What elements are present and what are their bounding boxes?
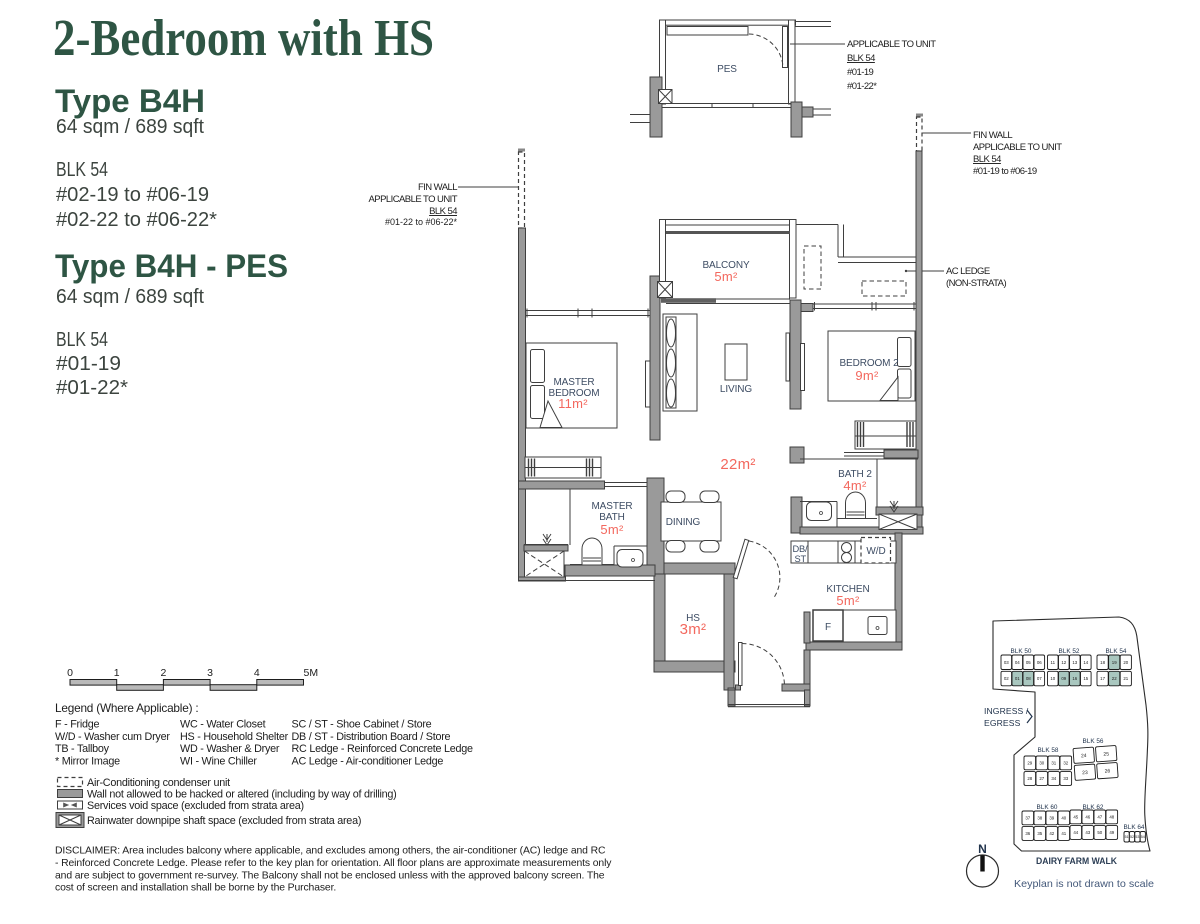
svg-text:03: 03 <box>1004 660 1009 665</box>
svg-text:4m²: 4m² <box>843 478 867 493</box>
svg-text:#02-22 to #06-22*: #02-22 to #06-22* <box>56 209 217 231</box>
svg-text:22m²: 22m² <box>720 456 755 473</box>
svg-text:20: 20 <box>1123 660 1128 665</box>
svg-text:BLK 64: BLK 64 <box>1124 824 1145 831</box>
svg-text:W/D: W/D <box>866 546 885 557</box>
svg-text:cost of screen and installatio: cost of screen and installation shall be… <box>55 883 336 894</box>
svg-text:33: 33 <box>1063 776 1068 781</box>
svg-text:BLK 54: BLK 54 <box>1106 648 1127 655</box>
svg-text:PES: PES <box>717 64 737 75</box>
svg-text:47: 47 <box>1097 815 1102 820</box>
svg-text:HS - Household Shelter: HS - Household Shelter <box>180 731 289 743</box>
svg-text:3: 3 <box>207 667 213 679</box>
svg-text:53: 53 <box>1135 835 1139 839</box>
svg-text:12: 12 <box>1061 660 1066 665</box>
svg-text:25: 25 <box>1103 751 1109 757</box>
svg-text:AC LEDGE: AC LEDGE <box>946 266 990 277</box>
svg-text:44: 44 <box>1073 830 1078 835</box>
svg-text:LIVING: LIVING <box>720 384 753 395</box>
svg-text:#01-22*: #01-22* <box>847 81 877 92</box>
svg-text:BLK 54: BLK 54 <box>56 159 108 181</box>
svg-text:08: 08 <box>1026 676 1031 681</box>
svg-text:APPLICABLE TO UNIT: APPLICABLE TO UNIT <box>369 194 458 205</box>
svg-text:02: 02 <box>1004 676 1009 681</box>
svg-text:05: 05 <box>1026 660 1031 665</box>
svg-text:W/D - Washer cum Dryer: W/D - Washer cum Dryer <box>55 731 170 743</box>
svg-text:#01-19 to #06-19: #01-19 to #06-19 <box>973 166 1037 177</box>
svg-text:64 sqm / 689 sqft: 64 sqm / 689 sqft <box>56 286 204 308</box>
svg-text:SC / ST - Shoe Cabinet / Store: SC / ST - Shoe Cabinet / Store <box>292 719 432 731</box>
svg-text:5m²: 5m² <box>600 522 624 537</box>
svg-text:TB - Tallboy: TB - Tallboy <box>55 743 110 755</box>
svg-text:39: 39 <box>1049 816 1054 821</box>
svg-text:FIN WALL: FIN WALL <box>973 130 1012 141</box>
svg-text:37: 37 <box>1025 816 1030 821</box>
svg-text:04: 04 <box>1015 660 1020 665</box>
svg-text:EGRESS: EGRESS <box>984 718 1021 728</box>
svg-text:21: 21 <box>1123 676 1128 681</box>
svg-text:APPLICABLE TO UNIT: APPLICABLE TO UNIT <box>847 39 936 50</box>
svg-text:Type B4H - PES: Type B4H - PES <box>55 248 288 284</box>
svg-text:DAIRY FARM WALK: DAIRY FARM WALK <box>1036 856 1117 867</box>
svg-text:32: 32 <box>1063 761 1068 766</box>
svg-text:09: 09 <box>1061 676 1066 681</box>
svg-text:and are subject to government: and are subject to government re-survey.… <box>55 870 605 881</box>
svg-text:1: 1 <box>114 667 120 679</box>
svg-text:9m²: 9m² <box>855 368 879 383</box>
svg-text:28: 28 <box>1027 776 1032 781</box>
svg-text:Air-Conditioning condenser uni: Air-Conditioning condenser unit <box>87 777 230 789</box>
svg-text:41: 41 <box>1061 831 1066 836</box>
svg-text:2-Bedroom with HS: 2-Bedroom with HS <box>53 10 434 67</box>
svg-text:48: 48 <box>1109 815 1114 820</box>
svg-text:52: 52 <box>1130 835 1134 839</box>
svg-text:DB/: DB/ <box>793 544 809 554</box>
svg-text:#01-19: #01-19 <box>847 67 874 78</box>
svg-text:ST: ST <box>795 554 807 564</box>
svg-text:10: 10 <box>1050 676 1055 681</box>
svg-text:Legend (Where Applicable) :: Legend (Where Applicable) : <box>55 701 198 715</box>
svg-text:Type B4H: Type B4H <box>55 83 205 119</box>
svg-text:2: 2 <box>160 667 166 679</box>
svg-text:51: 51 <box>1125 835 1129 839</box>
svg-text:5m²: 5m² <box>836 593 860 608</box>
svg-text:29: 29 <box>1027 761 1032 766</box>
svg-text:* Mirror Image: * Mirror Image <box>55 755 120 767</box>
svg-text:27: 27 <box>1039 776 1044 781</box>
svg-text:BLK 60: BLK 60 <box>1037 804 1058 811</box>
svg-text:13: 13 <box>1072 660 1077 665</box>
svg-text:BLK 56: BLK 56 <box>1083 738 1104 745</box>
svg-text:BLK 54: BLK 54 <box>973 154 1001 165</box>
svg-text:DISCLAIMER: Area includes balc: DISCLAIMER: Area includes balcony where … <box>55 846 606 857</box>
svg-text:BLK 54: BLK 54 <box>847 53 875 64</box>
svg-text:FIN WALL: FIN WALL <box>418 182 457 193</box>
svg-text:5M: 5M <box>304 667 319 679</box>
svg-text:APPLICABLE TO UNIT: APPLICABLE TO UNIT <box>973 142 1062 153</box>
svg-text:11: 11 <box>1051 660 1056 665</box>
svg-text:35: 35 <box>1037 831 1042 836</box>
svg-text:23: 23 <box>1082 770 1088 776</box>
svg-text:38: 38 <box>1037 816 1042 821</box>
svg-text:07: 07 <box>1037 676 1042 681</box>
svg-text:BLK 52: BLK 52 <box>1059 648 1080 655</box>
svg-text:17: 17 <box>1100 676 1105 681</box>
svg-text:RC Ledge - Reinforced Concrete: RC Ledge - Reinforced Concrete Ledge <box>292 743 474 755</box>
svg-text:(NON-STRATA): (NON-STRATA) <box>946 278 1006 289</box>
svg-text:BLK 50: BLK 50 <box>1011 648 1032 655</box>
svg-text:11m²: 11m² <box>558 396 588 411</box>
svg-text:22: 22 <box>1112 676 1117 681</box>
svg-text:43: 43 <box>1085 830 1090 835</box>
svg-text:N: N <box>978 842 987 856</box>
svg-text:F - Fridge: F - Fridge <box>55 719 100 731</box>
svg-text:MASTER: MASTER <box>553 377 594 388</box>
svg-text:WD - Washer & Dryer: WD - Washer & Dryer <box>180 743 280 755</box>
svg-text:#01-19: #01-19 <box>56 353 121 375</box>
svg-text:46: 46 <box>1085 815 1090 820</box>
svg-text:Services void space (excluded: Services void space (excluded from strat… <box>87 800 304 812</box>
svg-text:DB / ST - Distribution Board /: DB / ST - Distribution Board / Store <box>292 731 451 743</box>
svg-text:06: 06 <box>1037 660 1042 665</box>
svg-text:49: 49 <box>1109 830 1114 835</box>
svg-text:5m²: 5m² <box>714 269 738 284</box>
svg-text:#02-19 to #06-19: #02-19 to #06-19 <box>56 184 209 206</box>
svg-text:3m²: 3m² <box>680 621 707 638</box>
svg-text:BLK 54: BLK 54 <box>429 206 457 217</box>
svg-text:24: 24 <box>1081 753 1087 759</box>
svg-text:34: 34 <box>1051 776 1056 781</box>
svg-text:WI - Wine Chiller: WI - Wine Chiller <box>180 755 257 767</box>
svg-text:50: 50 <box>1097 830 1102 835</box>
svg-text:BLK 58: BLK 58 <box>1038 747 1059 754</box>
svg-text:01: 01 <box>1015 676 1020 681</box>
svg-text:40: 40 <box>1061 816 1066 821</box>
svg-text:#01-22*: #01-22* <box>56 377 128 399</box>
svg-text:Keyplan is not drawn to scale: Keyplan is not drawn to scale <box>1014 878 1154 890</box>
svg-text:16: 16 <box>1072 676 1077 681</box>
svg-text:31: 31 <box>1051 761 1056 766</box>
svg-text:30: 30 <box>1039 761 1044 766</box>
svg-text:#01-22 to #06-22*: #01-22 to #06-22* <box>385 217 458 227</box>
svg-text:36: 36 <box>1025 831 1030 836</box>
svg-text:26: 26 <box>1104 768 1110 774</box>
svg-text:Wall not allowed to be hacked: Wall not allowed to be hacked or altered… <box>87 789 397 801</box>
svg-text:AC Ledge - Air-conditioner Led: AC Ledge - Air-conditioner Ledge <box>292 755 444 767</box>
svg-text:45: 45 <box>1073 815 1078 820</box>
svg-text:MASTER: MASTER <box>591 501 632 512</box>
svg-text:INGRESS /: INGRESS / <box>984 706 1029 716</box>
svg-text:15: 15 <box>1083 676 1088 681</box>
svg-text:DINING: DINING <box>666 517 701 528</box>
svg-text:- Reinforced Concrete Ledge. P: - Reinforced Concrete Ledge. Please refe… <box>55 858 612 869</box>
svg-text:Rainwater downpipe shaft space: Rainwater downpipe shaft space (excluded… <box>87 815 361 827</box>
svg-text:0: 0 <box>67 667 73 679</box>
svg-text:BLK 54: BLK 54 <box>56 329 108 351</box>
svg-text:18: 18 <box>1100 660 1105 665</box>
svg-text:54: 54 <box>1141 835 1145 839</box>
svg-text:19: 19 <box>1112 660 1117 665</box>
svg-text:WC - Water Closet: WC - Water Closet <box>180 719 266 731</box>
svg-text:14: 14 <box>1083 660 1088 665</box>
svg-text:42: 42 <box>1049 831 1054 836</box>
svg-text:64 sqm / 689 sqft: 64 sqm / 689 sqft <box>56 116 204 138</box>
svg-text:F: F <box>825 622 831 633</box>
svg-text:4: 4 <box>254 667 260 679</box>
